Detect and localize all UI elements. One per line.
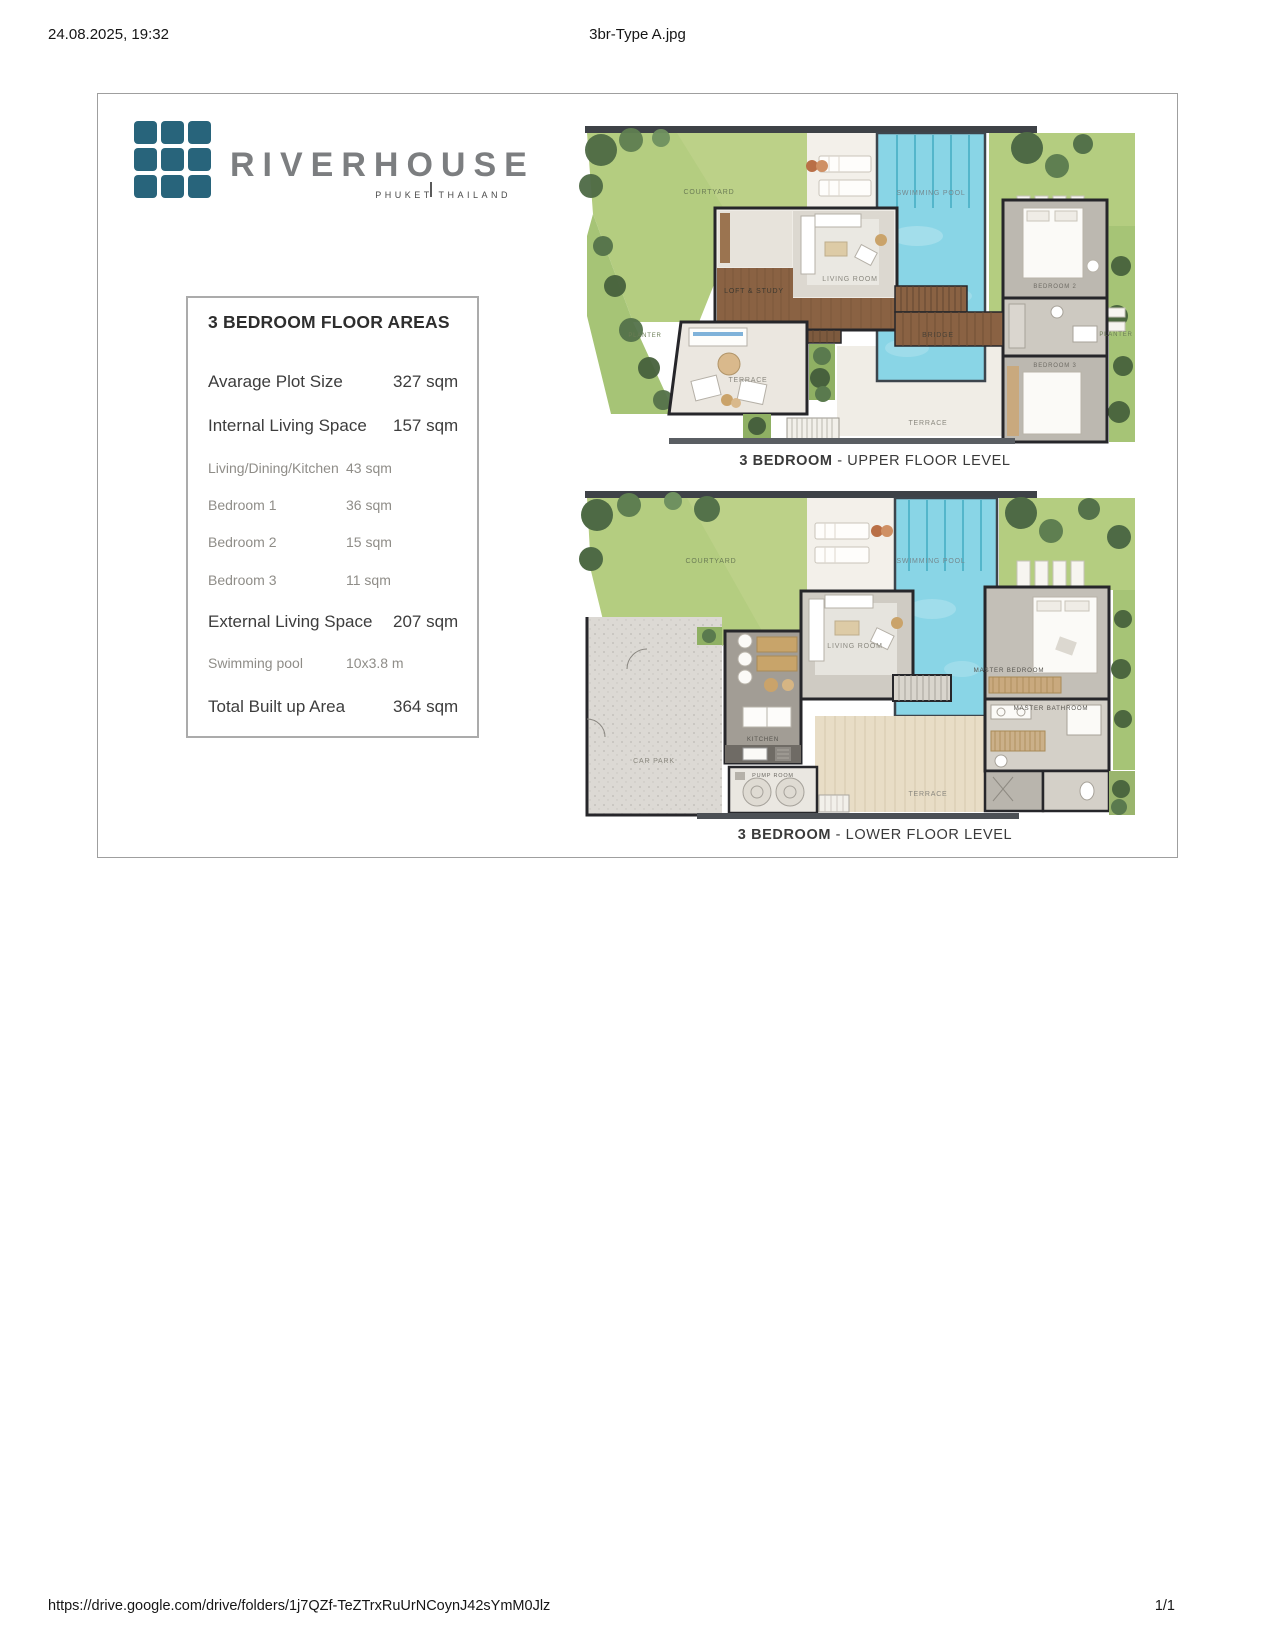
row-label: Internal Living Space (208, 416, 367, 435)
label-courtyard: COURTYARD (684, 189, 735, 196)
print-filename: 3br-Type A.jpg (0, 26, 1275, 43)
row-value: 207 sqm (393, 612, 458, 632)
table-row: Avarage Plot Size327 sqm (208, 372, 471, 392)
caption-rest: - LOWER FLOOR LEVEL (831, 827, 1012, 843)
table-row: Bedroom 311 sqm (208, 572, 471, 588)
row-value: 15 sqm (346, 534, 392, 550)
lower-plan-caption: 3 BEDROOM - LOWER FLOOR LEVEL (557, 827, 1137, 843)
side-table (816, 160, 828, 172)
row-value: 36 sqm (346, 497, 392, 513)
label-master-bathroom: MASTER BATHROOM (1014, 705, 1089, 712)
print-preview-page: 24.08.2025, 19:32 3br-Type A.jpg RIVERHO… (0, 0, 1275, 1650)
print-source-url: https://drive.google.com/drive/folders/1… (48, 1598, 550, 1614)
caption-rest: - UPPER FLOOR LEVEL (833, 453, 1011, 469)
label-living-room: LIVING ROOM (822, 276, 877, 283)
logo-square (134, 148, 157, 171)
lower-floor-plan: COURTYARD SWIMMING POOL LIVING ROOM KITC… (557, 479, 1137, 824)
table-row: Internal Living Space157 sqm (208, 416, 471, 436)
terrace-left (669, 322, 807, 414)
stairs (893, 675, 951, 701)
print-page-indicator: 1/1 (1155, 1598, 1175, 1614)
row-value: 364 sqm (393, 697, 458, 717)
logo-square (188, 121, 211, 144)
label-pump-room: PUMP ROOM (752, 773, 794, 779)
row-label: Swimming pool (208, 655, 303, 671)
brochure-frame: RIVERHOUSE PHUKET THAILAND 3 BEDROOM FLO… (97, 93, 1178, 858)
floor-areas-title: 3 BEDROOM FLOOR AREAS (208, 312, 450, 333)
label-swimming-pool: SWIMMING POOL (896, 190, 965, 197)
master-bedroom-room (985, 587, 1109, 699)
car-park-area (587, 617, 722, 815)
row-label: Bedroom 3 (208, 572, 276, 588)
wc-shower-rooms (985, 771, 1109, 811)
row-label: External Living Space (208, 612, 372, 631)
label-kitchen: KITCHEN (747, 737, 779, 743)
terrace-deck (815, 716, 999, 812)
label-bedroom-3: BEDROOM 3 (1033, 363, 1076, 369)
brand-logo-icon (134, 121, 211, 198)
label-car-park: CAR PARK (633, 758, 675, 765)
boundary-wall-bottom (697, 813, 1019, 819)
table-row: Swimming pool10x3.8 m (208, 655, 471, 671)
label-master-bedroom: MASTER BEDROOM (974, 667, 1045, 674)
label-planter-right: PLANTER (1099, 332, 1132, 338)
row-label: Avarage Plot Size (208, 372, 343, 391)
brand-name: RIVERHOUSE (230, 146, 535, 185)
stairs (895, 286, 967, 312)
row-value: 43 sqm (346, 460, 392, 476)
row-label: Living/Dining/Kitchen (208, 460, 339, 476)
label-swimming-pool: SWIMMING POOL (896, 558, 965, 565)
caption-bold: 3 BEDROOM (739, 453, 832, 469)
floor-areas-table: 3 BEDROOM FLOOR AREAS Avarage Plot Size3… (186, 296, 479, 738)
table-row: Bedroom 136 sqm (208, 497, 471, 513)
row-value: 327 sqm (393, 372, 458, 392)
logo-square (134, 175, 157, 198)
table-row: Living/Dining/Kitchen43 sqm (208, 460, 471, 476)
logo-square (188, 175, 211, 198)
label-living-room: LIVING ROOM (827, 643, 882, 650)
logo-square (161, 175, 184, 198)
table-row: Total Built up Area364 sqm (208, 697, 471, 717)
logo-square (161, 121, 184, 144)
label-terrace: TERRACE (908, 791, 947, 798)
label-planter-left: PLANTER (628, 333, 661, 339)
row-label: Total Built up Area (208, 697, 345, 716)
row-label: Bedroom 2 (208, 534, 276, 550)
row-value: 10x3.8 m (346, 655, 404, 671)
label-bedroom-2: BEDROOM 2 (1033, 284, 1076, 290)
row-value: 157 sqm (393, 416, 458, 436)
logo-square (134, 121, 157, 144)
upper-plan-caption: 3 BEDROOM - UPPER FLOOR LEVEL (557, 453, 1137, 469)
label-bridge: BRIDGE (922, 332, 954, 339)
upper-floor-plan: COURTYARD SWIMMING POOL PLANTER PLANTER … (557, 116, 1137, 446)
table-row: Bedroom 215 sqm (208, 534, 471, 550)
table-row: External Living Space207 sqm (208, 612, 471, 632)
row-value: 11 sqm (346, 572, 391, 588)
caption-bold: 3 BEDROOM (738, 827, 831, 843)
boundary-wall-bottom (669, 438, 1015, 444)
label-courtyard: COURTYARD (686, 558, 737, 565)
bathroom-room (1003, 298, 1107, 356)
brand-tagline: PHUKET THAILAND (230, 190, 511, 200)
bridge (895, 312, 1003, 346)
logo-square (188, 148, 211, 171)
row-label: Bedroom 1 (208, 497, 276, 513)
side-table (881, 525, 893, 537)
label-terrace-left: TERRACE (728, 377, 767, 384)
logo-square (161, 148, 184, 171)
garden-bottom-right (1109, 771, 1135, 815)
kitchen-room (725, 631, 801, 763)
label-loft-study: LOFT & STUDY (724, 288, 784, 295)
label-terrace-bottom: TERRACE (908, 420, 947, 427)
